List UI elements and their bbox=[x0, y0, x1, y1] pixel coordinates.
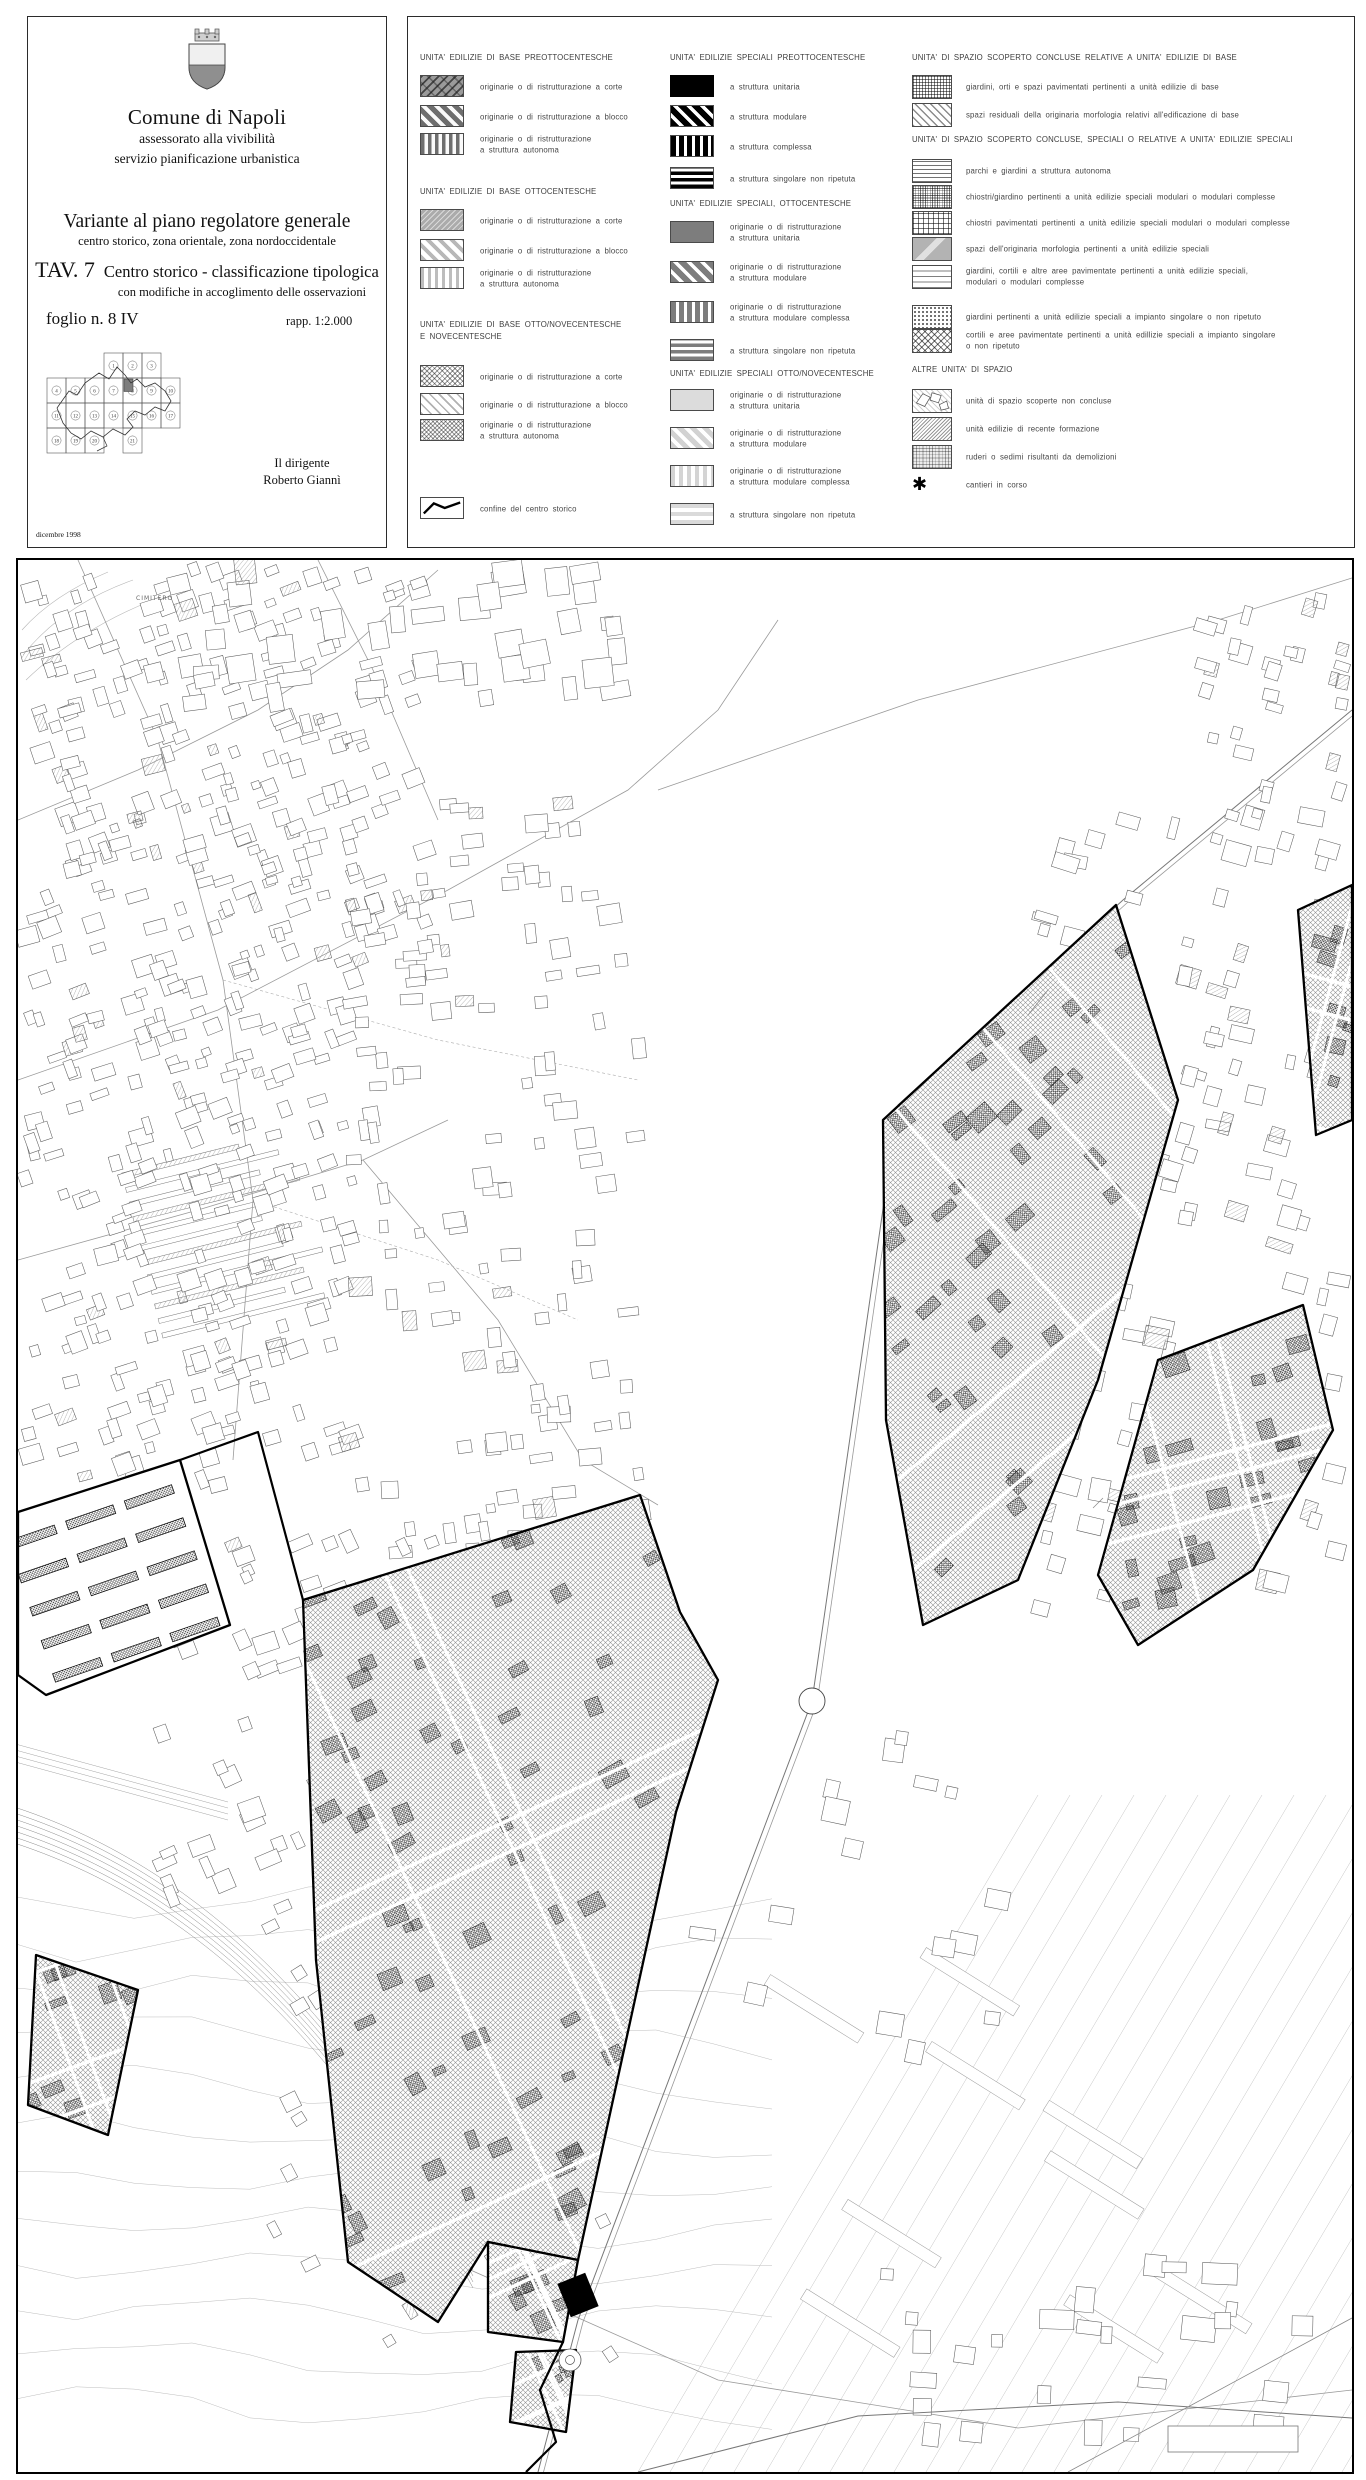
legend-row: originarie o di ristrutturazione a blocc… bbox=[420, 239, 662, 263]
swatch-wide-grid bbox=[912, 211, 952, 235]
legend-row: a struttura singolare non ripetuta bbox=[670, 167, 908, 191]
plan-sheet: Comune di Napoli assessorato alla vivibi… bbox=[0, 0, 1366, 2480]
legend-label: giardini, cortili e altre aree pavimenta… bbox=[966, 266, 1248, 289]
legend-row: originarie o di ristrutturazione a strut… bbox=[670, 427, 908, 451]
org-name: Comune di Napoli bbox=[28, 105, 386, 130]
legend-row: originarie o di ristrutturazione a strut… bbox=[670, 221, 908, 245]
swatch-solid-gray bbox=[670, 221, 714, 243]
swatch-vertical-stripes bbox=[420, 133, 464, 155]
legend-label: giardini, orti e spazi pavimentati perti… bbox=[966, 81, 1219, 92]
svg-text:CIMITERO: CIMITERO bbox=[136, 595, 173, 602]
swatch-diagonal-stripes-medium bbox=[420, 239, 464, 261]
swatch-horizontal-fine-lines bbox=[912, 159, 952, 183]
legend-label: originarie o di ristrutturazione a strut… bbox=[730, 428, 841, 451]
legend-header: UNITA' EDILIZIE DI BASE PREOTTOCENTESCHE bbox=[420, 53, 613, 62]
legend-row: giardini, cortili e altre aree pavimenta… bbox=[912, 265, 1348, 289]
legend-header: UNITA' EDILIZIE SPECIALI OTTO/NOVECENTES… bbox=[670, 369, 874, 378]
city-map: CIMITERO bbox=[16, 558, 1354, 2474]
legend-label: originarie o di ristrutturazione a strut… bbox=[480, 420, 591, 443]
legend-label: spazi dell'originaria morfologia pertine… bbox=[966, 243, 1209, 254]
legend-row: originarie o di ristrutturazione a strut… bbox=[670, 389, 908, 413]
legend-label: originarie o di ristrutturazione a corte bbox=[480, 371, 623, 382]
swatch-solid-black bbox=[670, 75, 714, 97]
legend-row: originarie o di ristrutturazione a strut… bbox=[420, 267, 662, 291]
swatch-fine-crosshatch bbox=[420, 365, 464, 387]
legend-label: a struttura unitaria bbox=[730, 81, 800, 92]
plan-title: Variante al piano regolatore generale bbox=[28, 211, 386, 233]
swatch-vertical-stripes-medium bbox=[420, 267, 464, 289]
legend-row: originarie o di ristrutturazione a corte bbox=[420, 209, 662, 233]
legend-row: originarie o di ristrutturazione a strut… bbox=[670, 261, 908, 285]
org-subtitle-1: assessorato alla vivibilità bbox=[28, 131, 386, 147]
swatch-diamond-lattice bbox=[912, 329, 952, 353]
title-block: Comune di Napoli assessorato alla vivibi… bbox=[27, 16, 387, 548]
swatch-light-diagonal-hatch bbox=[420, 393, 464, 415]
svg-text:17: 17 bbox=[168, 414, 174, 419]
legend-header: UNITA' EDILIZIE SPECIALI, OTTOCENTESCHE bbox=[670, 199, 851, 208]
asterisk-icon: ✱ bbox=[912, 473, 952, 497]
legend-label: cortili e aree pavimentate pertinenti a … bbox=[966, 330, 1276, 353]
swatch-irregular-parcels bbox=[912, 389, 952, 413]
legend-row: originarie o di ristrutturazione a strut… bbox=[420, 133, 662, 157]
legend-label: originarie o di ristrutturazione a strut… bbox=[730, 262, 841, 285]
svg-text:11: 11 bbox=[54, 414, 59, 419]
legend-label: parchi e giardini a struttura autonoma bbox=[966, 165, 1111, 176]
legend-row: unità edilizie di recente formazione bbox=[912, 417, 1348, 441]
plan-subtitle: centro storico, zona orientale, zona nor… bbox=[28, 234, 386, 249]
legend-row: chiostri pavimentati pertinenti a unità … bbox=[912, 211, 1348, 235]
legend-row: ruderi o sedimi risultanti da demolizion… bbox=[912, 445, 1348, 469]
legend-row: originarie o di ristrutturazione a blocc… bbox=[420, 105, 662, 129]
map-scale: rapp. 1:2.000 bbox=[286, 314, 352, 329]
legend-label: spazi residuali della originaria morfolo… bbox=[966, 109, 1239, 120]
sheet-date: dicembre 1998 bbox=[36, 530, 81, 539]
legend-header: ALTRE UNITA' DI SPAZIO bbox=[912, 365, 1012, 374]
legend-column-base-units: UNITA' EDILIZIE DI BASE PREOTTOCENTESCHE… bbox=[420, 17, 662, 547]
legend-header: UNITA' EDILIZIE DI BASE OTTO/NOVECENTESC… bbox=[420, 319, 621, 342]
swatch-dense-speckle bbox=[912, 417, 952, 441]
boundary-line-icon bbox=[420, 497, 464, 519]
legend-header: UNITA' EDILIZIE DI BASE OTTOCENTESCHE bbox=[420, 187, 596, 196]
legend-label: a struttura modulare bbox=[730, 111, 807, 122]
swatch-fine-dense-crosshatch bbox=[420, 419, 464, 441]
legend-row: originarie o di ristrutturazione a strut… bbox=[670, 301, 908, 325]
sheet-row: TAV. 7 Centro storico - classificazione … bbox=[28, 257, 386, 283]
signature-name: Roberto Giannì bbox=[232, 472, 372, 489]
legend-row: parchi e giardini a struttura autonoma bbox=[912, 159, 1348, 183]
swatch-fine-grid bbox=[912, 75, 952, 99]
legend-row: a struttura singolare non ripetuta bbox=[670, 339, 908, 363]
legend-label: chiostri/giardino pertinenti a unità edi… bbox=[966, 191, 1275, 202]
legend-label: chiostri pavimentati pertinenti a unità … bbox=[966, 217, 1290, 228]
sheet-code: TAV. 7 bbox=[35, 257, 95, 283]
svg-text:20: 20 bbox=[92, 439, 98, 444]
swatch-light-gray-diagonal bbox=[670, 427, 714, 449]
legend-row: unità di spazio scoperte non concluse bbox=[912, 389, 1348, 413]
legend-row: originarie o di ristrutturazione a corte bbox=[420, 75, 662, 99]
svg-text:18: 18 bbox=[54, 439, 60, 444]
org-subtitle-2: servizio pianificazione urbanistica bbox=[28, 151, 386, 167]
legend-label: confine del centro storico bbox=[480, 503, 577, 514]
legend-row: originarie o di ristrutturazione a blocc… bbox=[420, 393, 662, 417]
legend-label: a struttura singolare non ripetuta bbox=[730, 509, 855, 520]
svg-text:14: 14 bbox=[111, 414, 117, 419]
swatch-gray-diagonal bbox=[670, 261, 714, 283]
swatch-dense-grid bbox=[912, 185, 952, 209]
legend-row: giardini, orti e spazi pavimentati perti… bbox=[912, 75, 1348, 99]
swatch-light-gray-horizontal bbox=[670, 503, 714, 525]
sheet-note: con modifiche in accoglimento delle osse… bbox=[28, 285, 386, 300]
legend-label: originarie o di ristrutturazione a strut… bbox=[730, 390, 841, 413]
legend-row: cortili e aree pavimentate pertinenti a … bbox=[912, 329, 1348, 353]
legend-label: originarie o di ristrutturazione a strut… bbox=[730, 222, 841, 245]
legend-row: originarie o di ristrutturazione a strut… bbox=[420, 419, 662, 443]
legend-label: originarie o di ristrutturazione a blocc… bbox=[480, 111, 628, 122]
legend-column-open-space-units: UNITA' DI SPAZIO SCOPERTO CONCLUSE RELAT… bbox=[912, 17, 1348, 547]
legend-row: a struttura modulare bbox=[670, 105, 908, 129]
sheet-title: Centro storico - classificazione tipolog… bbox=[104, 262, 379, 282]
swatch-diagonal-hatch bbox=[912, 103, 952, 127]
legend-label: originarie o di ristrutturazione a blocc… bbox=[480, 245, 628, 256]
swatch-light-grid bbox=[912, 445, 952, 469]
legend-row-confine: confine del centro storico bbox=[420, 497, 662, 521]
swatch-black-horizontal bbox=[670, 167, 714, 189]
svg-text:19: 19 bbox=[73, 439, 79, 444]
legend-label: giardini pertinenti a unità edilizie spe… bbox=[966, 311, 1261, 322]
legend-header: UNITA' EDILIZIE SPECIALI PREOTTOCENTESCH… bbox=[670, 53, 865, 62]
legend-row: a struttura unitaria bbox=[670, 75, 908, 99]
legend-row: originarie o di ristrutturazione a corte bbox=[420, 365, 662, 389]
legend-label: originarie o di ristrutturazione a strut… bbox=[480, 268, 591, 291]
legend-row: a struttura complessa bbox=[670, 135, 908, 159]
legend-header: UNITA' DI SPAZIO SCOPERTO CONCLUSE RELAT… bbox=[912, 53, 1237, 62]
legend-label: a struttura singolare non ripetuta bbox=[730, 345, 855, 356]
legend-label: a struttura complessa bbox=[730, 141, 812, 152]
coat-of-arms-icon bbox=[180, 27, 234, 97]
signature-role: Il dirigente bbox=[232, 455, 372, 472]
swatch-black-diagonal bbox=[670, 105, 714, 127]
svg-text:10: 10 bbox=[168, 389, 174, 394]
swatch-gray-hatch bbox=[420, 209, 464, 231]
swatch-fine-dots bbox=[912, 305, 952, 329]
legend-row: spazi dell'originaria morfologia pertine… bbox=[912, 237, 1348, 261]
legend-label: originarie o di ristrutturazione a corte bbox=[480, 81, 623, 92]
swatch-horizontal-lines bbox=[912, 265, 952, 289]
legend-row: originarie o di ristrutturazione a strut… bbox=[670, 465, 908, 489]
svg-text:13: 13 bbox=[92, 414, 98, 419]
legend-row: a struttura singolare non ripetuta bbox=[670, 503, 908, 527]
legend-label: unità di spazio scoperte non concluse bbox=[966, 395, 1112, 406]
svg-text:16: 16 bbox=[149, 414, 155, 419]
legend-label: originarie o di ristrutturazione a corte bbox=[480, 215, 623, 226]
legend-row: chiostri/giardino pertinenti a unità edi… bbox=[912, 185, 1348, 209]
signature: Il dirigente Roberto Giannì bbox=[232, 455, 372, 489]
legend-label: originarie o di ristrutturazione a blocc… bbox=[480, 399, 628, 410]
swatch-gray-band bbox=[912, 237, 952, 261]
swatch-gray-horizontal bbox=[670, 339, 714, 361]
legend-column-special-units: UNITA' EDILIZIE SPECIALI PREOTTOCENTESCH… bbox=[670, 17, 908, 547]
svg-text:12: 12 bbox=[73, 414, 79, 419]
legend-row: ✱ cantieri in corso bbox=[912, 473, 1348, 497]
swatch-dark-crosshatch bbox=[420, 75, 464, 97]
legend-row: giardini pertinenti a unità edilizie spe… bbox=[912, 305, 1348, 329]
legend-label: originarie o di ristrutturazione a strut… bbox=[480, 134, 591, 157]
legend-label: originarie o di ristrutturazione a strut… bbox=[730, 302, 850, 325]
legend-header: UNITA' DI SPAZIO SCOPERTO CONCLUSE, SPEC… bbox=[912, 135, 1293, 144]
legend-label: cantieri in corso bbox=[966, 479, 1027, 490]
legend-label: ruderi o sedimi risultanti da demolizion… bbox=[966, 451, 1117, 462]
legend-label: unità edilizie di recente formazione bbox=[966, 423, 1099, 434]
svg-text:21: 21 bbox=[130, 439, 136, 444]
swatch-diagonal-stripes bbox=[420, 105, 464, 127]
legend-label: originarie o di ristrutturazione a strut… bbox=[730, 466, 850, 489]
sheet-index-map: 123456789101112131415161718192021 bbox=[44, 351, 194, 481]
swatch-solid-light-gray bbox=[670, 389, 714, 411]
swatch-light-gray-vertical bbox=[670, 465, 714, 487]
swatch-gray-vertical bbox=[670, 301, 714, 323]
legend-panel: UNITA' EDILIZIE DI BASE PREOTTOCENTESCHE… bbox=[407, 16, 1355, 548]
swatch-black-vertical bbox=[670, 135, 714, 157]
folio-number: foglio n. 8 IV bbox=[46, 309, 139, 329]
legend-row: spazi residuali della originaria morfolo… bbox=[912, 103, 1348, 127]
legend-label: a struttura singolare non ripetuta bbox=[730, 173, 855, 184]
